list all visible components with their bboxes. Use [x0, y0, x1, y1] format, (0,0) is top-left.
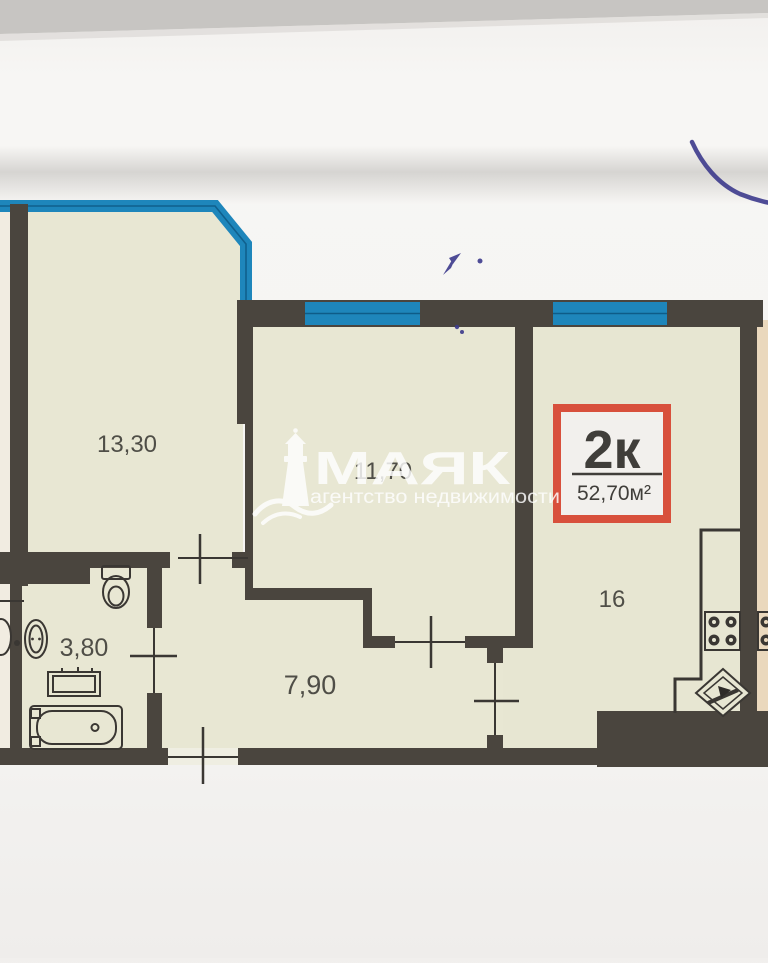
badge-rooms-count: 2к — [583, 420, 641, 480]
wall-dot — [14, 640, 20, 646]
badge-area-value: 52,70м² — [577, 482, 651, 505]
adjacent-bath-left — [0, 584, 10, 750]
room-living-fill — [10, 212, 243, 556]
wall-bottom — [0, 748, 597, 765]
wall — [10, 204, 28, 586]
pen-dot — [455, 325, 459, 329]
wall — [465, 636, 533, 648]
floorplan-drawing: 13,30 11,70 16 3,80 7,90 2к 52,70м² МАЯК… — [0, 0, 768, 958]
watermark-tagline: агентство недвижимости — [310, 487, 560, 508]
room-label-hallway: 7,90 — [284, 670, 337, 700]
wall — [10, 584, 22, 752]
pen-dot — [460, 330, 464, 334]
wall — [487, 648, 503, 663]
page-fold-shadow — [0, 146, 768, 204]
wall — [0, 552, 170, 568]
apartment-badge: 2к 52,70м² — [557, 408, 667, 519]
wall-right — [740, 315, 757, 713]
room-label-bathroom: 3,80 — [60, 634, 109, 662]
scanned-floorplan-page: 13,30 11,70 16 3,80 7,90 2к 52,70м² МАЯК… — [0, 0, 768, 963]
wall — [232, 552, 253, 568]
wall-bottom-right — [597, 711, 768, 767]
wall — [147, 552, 162, 628]
room-label-living: 13,30 — [97, 431, 157, 458]
wall — [147, 693, 162, 752]
scan-artifacts — [0, 0, 768, 204]
adjacent-unit-right — [757, 320, 768, 712]
wall — [363, 636, 395, 648]
wall — [245, 424, 253, 600]
pen-dot — [478, 259, 483, 264]
room-label-16: 16 — [599, 586, 626, 613]
wall — [245, 588, 372, 600]
